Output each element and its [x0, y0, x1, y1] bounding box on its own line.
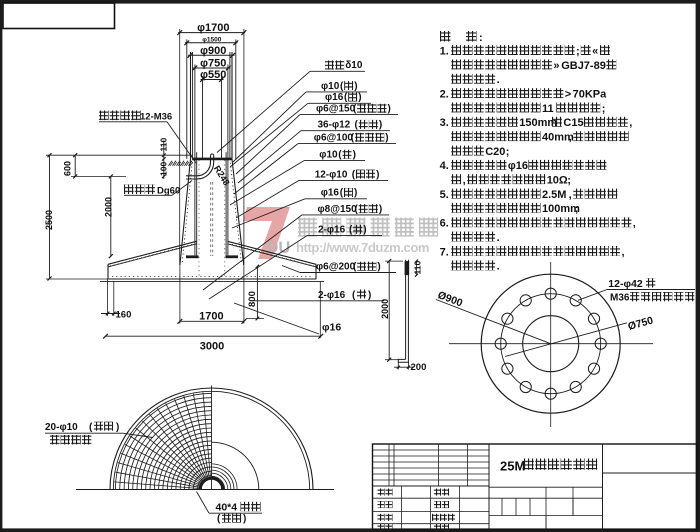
svg-text:M36: M36 — [610, 293, 630, 304]
svg-text:): ) — [379, 204, 382, 215]
svg-text:36-φ12: 36-φ12 — [318, 120, 351, 131]
svg-text:): ) — [376, 169, 379, 180]
svg-text:2000: 2000 — [380, 299, 390, 319]
svg-text:,: , — [622, 246, 625, 258]
svg-text:12-φ42: 12-φ42 — [608, 278, 643, 290]
svg-text:3000: 3000 — [200, 341, 224, 353]
svg-text::: : — [479, 32, 483, 44]
svg-text:20-φ10: 20-φ10 — [45, 422, 78, 433]
svg-text:): ) — [363, 225, 366, 236]
svg-text:,: , — [569, 132, 572, 144]
svg-text:40*4: 40*4 — [216, 502, 238, 514]
svg-text:100: 100 — [159, 162, 169, 176]
svg-text:φ6@150: φ6@150 — [316, 104, 356, 115]
svg-text:600: 600 — [63, 161, 73, 176]
svg-text:): ) — [385, 133, 388, 144]
svg-text:2-φ16: 2-φ16 — [318, 225, 346, 236]
svg-text:): ) — [353, 150, 356, 161]
svg-text:φ16: φ16 — [322, 322, 341, 334]
svg-text:160: 160 — [116, 310, 132, 321]
svg-text:110: 110 — [413, 261, 423, 275]
svg-text:2-φ16: 2-φ16 — [318, 290, 346, 301]
svg-text:): ) — [354, 188, 357, 199]
svg-text:φ16: φ16 — [508, 160, 528, 172]
svg-text:GBJ7-89: GBJ7-89 — [561, 60, 606, 72]
svg-text:6.: 6. — [440, 218, 449, 230]
svg-text:;: ; — [576, 45, 580, 57]
svg-text:200: 200 — [411, 362, 427, 373]
svg-text:δ10: δ10 — [345, 60, 363, 71]
svg-text:,: , — [463, 175, 466, 187]
svg-text:2.: 2. — [440, 89, 449, 101]
svg-text:>: > — [565, 89, 571, 101]
svg-text:φ16: φ16 — [321, 188, 340, 199]
svg-text:;: ; — [567, 175, 571, 187]
svg-text:2.5M: 2.5M — [542, 189, 566, 201]
svg-text:4.: 4. — [440, 160, 449, 172]
svg-text:): ) — [368, 290, 371, 301]
svg-text:12-φ10: 12-φ10 — [315, 169, 348, 180]
svg-text:C20: C20 — [485, 146, 505, 158]
svg-text:φ8@150: φ8@150 — [318, 204, 358, 215]
svg-text:»: » — [553, 60, 559, 72]
svg-text:φ6@100: φ6@100 — [314, 133, 354, 144]
svg-text:25M: 25M — [500, 459, 525, 474]
svg-text:800: 800 — [247, 291, 258, 307]
svg-text:,: , — [569, 189, 572, 201]
svg-text:3.: 3. — [440, 117, 449, 129]
svg-text:7.: 7. — [440, 246, 449, 258]
svg-text:11: 11 — [542, 103, 554, 115]
svg-text:«: « — [592, 45, 598, 57]
svg-text:1.: 1. — [440, 45, 449, 57]
svg-text:1700: 1700 — [199, 311, 223, 323]
svg-text:φ1500: φ1500 — [202, 36, 221, 43]
svg-text:;: ; — [506, 146, 510, 158]
svg-text:φ6@200: φ6@200 — [316, 261, 356, 272]
svg-text:,: , — [629, 117, 632, 129]
svg-text:): ) — [379, 120, 382, 131]
svg-text:.: . — [497, 261, 500, 273]
svg-text:.: . — [497, 74, 500, 86]
svg-text:2000: 2000 — [104, 197, 114, 217]
svg-text:5.: 5. — [440, 189, 449, 201]
svg-text:): ) — [116, 422, 119, 433]
svg-text:): ) — [377, 261, 380, 272]
svg-text:φ10: φ10 — [321, 81, 340, 92]
svg-text:,: , — [633, 218, 636, 230]
svg-text:70KPa: 70KPa — [573, 89, 608, 101]
svg-text:φ10: φ10 — [319, 150, 338, 161]
svg-text:): ) — [243, 514, 246, 525]
svg-text:): ) — [358, 92, 361, 103]
svg-text:150mm: 150mm — [519, 117, 557, 129]
svg-text:12-M36: 12-M36 — [140, 112, 172, 123]
svg-text:http://www.7duzm.com: http://www.7duzm.com — [296, 240, 429, 255]
svg-text:;: ; — [575, 203, 579, 215]
svg-text:): ) — [388, 104, 391, 115]
svg-text:10Ω: 10Ω — [547, 175, 568, 187]
svg-text:C15: C15 — [563, 117, 583, 129]
svg-text:2500: 2500 — [44, 210, 54, 230]
svg-text:.: . — [497, 232, 500, 244]
svg-text:110: 110 — [159, 138, 169, 152]
svg-text:;: ; — [602, 103, 606, 115]
svg-text:φ16: φ16 — [325, 92, 344, 103]
svg-text:): ) — [354, 81, 357, 92]
